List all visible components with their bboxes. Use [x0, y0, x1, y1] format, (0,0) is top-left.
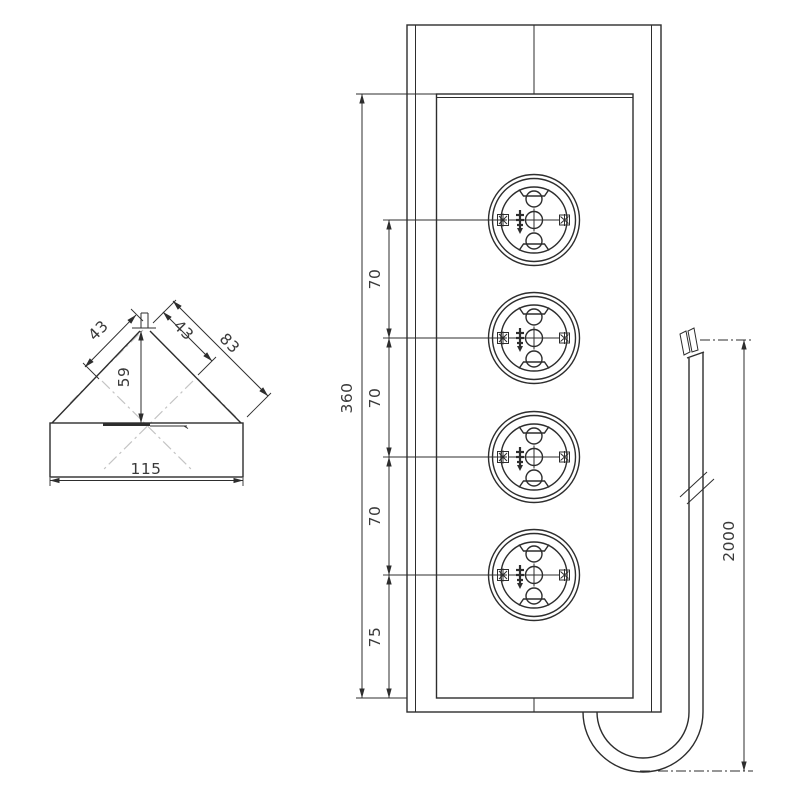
power-cable: 2000	[583, 328, 753, 772]
dim-label-70-2: 70	[366, 388, 384, 409]
cable-u-bend-inner	[597, 712, 689, 758]
dim-label-59: 59	[115, 367, 133, 388]
dim-label-70-3: 70	[366, 506, 384, 527]
dim-label-70-1: 70	[366, 269, 384, 290]
dim-height-59: 59	[115, 331, 141, 423]
cable-u-bend-outer	[583, 712, 703, 772]
dim-cable-length-2000: 2000	[640, 340, 753, 771]
dim-label-43-left: 43	[85, 317, 112, 344]
dim-label-2000: 2000	[720, 520, 738, 561]
housing-outline	[407, 25, 661, 712]
dim-edge-right-inner-43: 43	[153, 300, 216, 375]
dim-label-75: 75	[366, 627, 384, 648]
dim-label-360: 360	[338, 382, 356, 413]
corner-socket-technical-drawing: 115 59 43 43 83	[0, 0, 800, 800]
cable-break-mark	[680, 472, 714, 504]
stripped-conductors	[680, 328, 698, 355]
dim-socket-spacing-chain: 70 70 70 75	[366, 220, 395, 698]
dim-edge-right-outer-83: 83	[173, 301, 271, 417]
dim-total-height-360: 360	[338, 94, 436, 698]
dim-label-115: 115	[130, 460, 161, 478]
dim-width-115: 115	[50, 460, 243, 486]
dim-edge-left-43: 43	[83, 309, 143, 379]
technical-drawing-page: 115 59 43 43 83	[0, 0, 800, 800]
corner-profile-view: 115 59 43 43 83	[50, 300, 271, 486]
dim-label-83: 83	[216, 330, 243, 357]
socket-axis-centerlines	[70, 330, 238, 471]
front-view: 360 70 70 70 75	[338, 25, 661, 712]
